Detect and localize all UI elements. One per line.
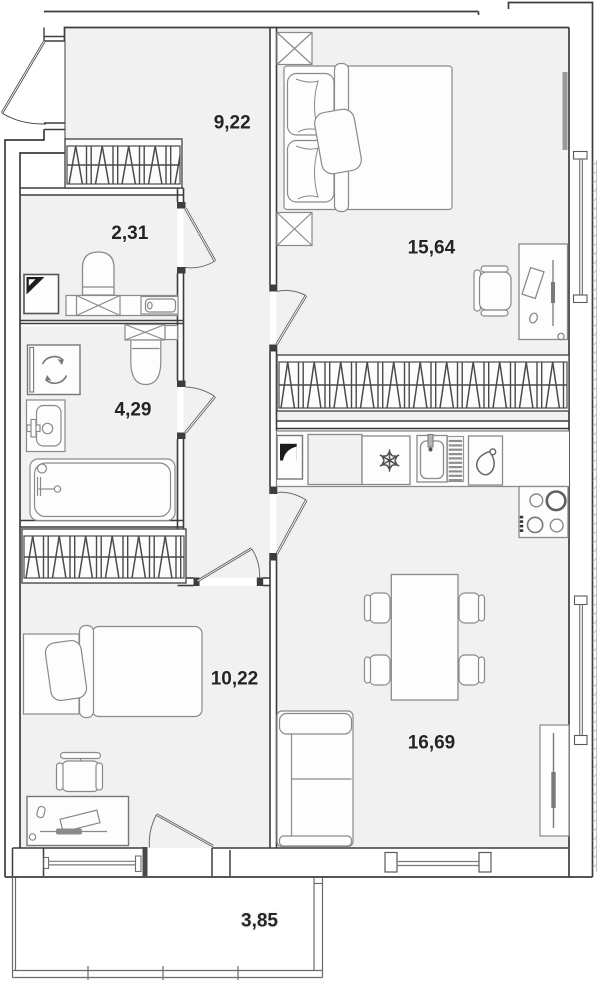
svg-text:10,22: 10,22 [211, 669, 259, 690]
svg-text:16,69: 16,69 [408, 733, 456, 754]
svg-text:2,31: 2,31 [111, 223, 148, 244]
svg-text:4,29: 4,29 [115, 400, 152, 421]
svg-text:15,64: 15,64 [408, 238, 456, 259]
svg-text:3,85: 3,85 [241, 911, 278, 932]
svg-text:9,22: 9,22 [214, 113, 251, 134]
